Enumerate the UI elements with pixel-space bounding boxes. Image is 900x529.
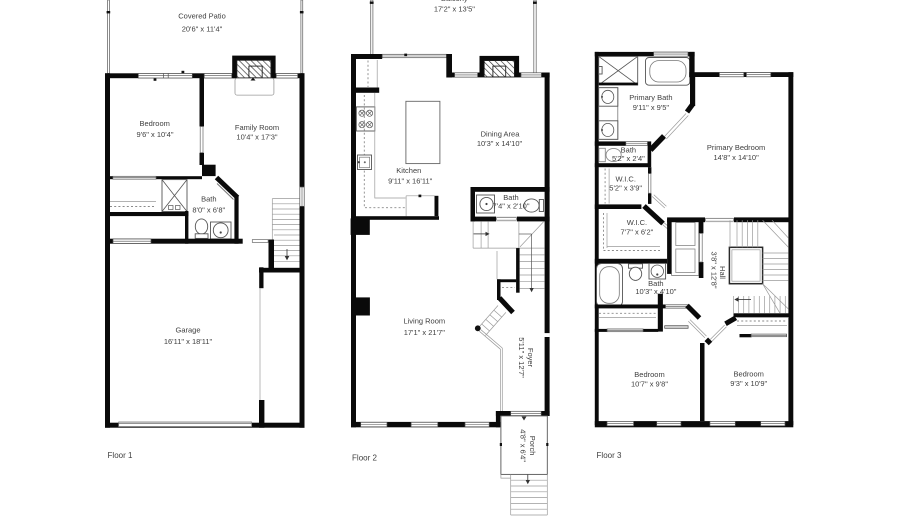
svg-text:Primary Bath: Primary Bath — [629, 93, 672, 102]
svg-text:Foyer: Foyer — [526, 348, 535, 368]
svg-text:5'2" x 2'4": 5'2" x 2'4" — [612, 154, 645, 163]
svg-text:Balcony: Balcony — [441, 0, 468, 3]
svg-text:16'11" x 18'11": 16'11" x 18'11" — [164, 337, 213, 346]
svg-text:Living Room: Living Room — [403, 316, 445, 325]
svg-text:Floor 1: Floor 1 — [108, 451, 133, 460]
svg-text:Family Room: Family Room — [235, 123, 279, 132]
svg-text:7'7" x 6'2": 7'7" x 6'2" — [621, 227, 654, 236]
svg-text:8'0" x 6'8": 8'0" x 6'8" — [192, 206, 225, 215]
svg-text:10'7" x 9'8": 10'7" x 9'8" — [631, 379, 668, 388]
svg-text:Floor 2: Floor 2 — [352, 453, 377, 462]
svg-text:Hall: Hall — [718, 266, 727, 279]
svg-text:17'1" x 21'7": 17'1" x 21'7" — [404, 328, 445, 337]
svg-text:10'3" x 4'10": 10'3" x 4'10" — [635, 287, 676, 296]
svg-text:Kitchen: Kitchen — [396, 166, 421, 175]
svg-text:9'6" x 10'4": 9'6" x 10'4" — [137, 130, 174, 139]
svg-text:9'11" x 16'11": 9'11" x 16'11" — [388, 176, 433, 185]
svg-text:20'6" x 11'4": 20'6" x 11'4" — [182, 25, 223, 34]
svg-text:5'2" x 3'9": 5'2" x 3'9" — [609, 184, 642, 193]
svg-text:Bath: Bath — [201, 194, 216, 203]
svg-text:9'3" x 10'9": 9'3" x 10'9" — [730, 379, 767, 388]
svg-text:Bedroom: Bedroom — [634, 370, 664, 379]
svg-text:Bedroom: Bedroom — [733, 369, 763, 378]
svg-text:14'8" x 14'10": 14'8" x 14'10" — [713, 153, 759, 162]
svg-text:10'4" x 17'3": 10'4" x 17'3" — [236, 133, 277, 142]
svg-text:Garage: Garage — [175, 326, 200, 335]
svg-text:Covered Patio: Covered Patio — [178, 12, 226, 21]
svg-text:Bedroom: Bedroom — [139, 119, 169, 128]
svg-text:17'2" x 13'5": 17'2" x 13'5" — [434, 5, 475, 14]
svg-text:Floor 3: Floor 3 — [597, 451, 622, 460]
svg-text:7'4" x 2'10": 7'4" x 2'10" — [493, 202, 530, 211]
svg-text:9'11" x 9'5": 9'11" x 9'5" — [633, 103, 670, 112]
svg-text:W.I.C.: W.I.C. — [615, 174, 635, 183]
svg-text:W.I.C.: W.I.C. — [627, 218, 647, 227]
svg-text:Porch: Porch — [528, 436, 537, 456]
svg-text:3'8" x 12'8": 3'8" x 12'8" — [710, 252, 719, 289]
svg-text:5'11" x 12'7": 5'11" x 12'7" — [517, 337, 526, 378]
svg-text:Primary Bedroom: Primary Bedroom — [707, 143, 765, 152]
svg-text:10'3" x 14'10": 10'3" x 14'10" — [477, 139, 523, 148]
svg-text:Dining Area: Dining Area — [481, 129, 521, 138]
svg-text:4'8" x 6'4": 4'8" x 6'4" — [519, 429, 528, 462]
